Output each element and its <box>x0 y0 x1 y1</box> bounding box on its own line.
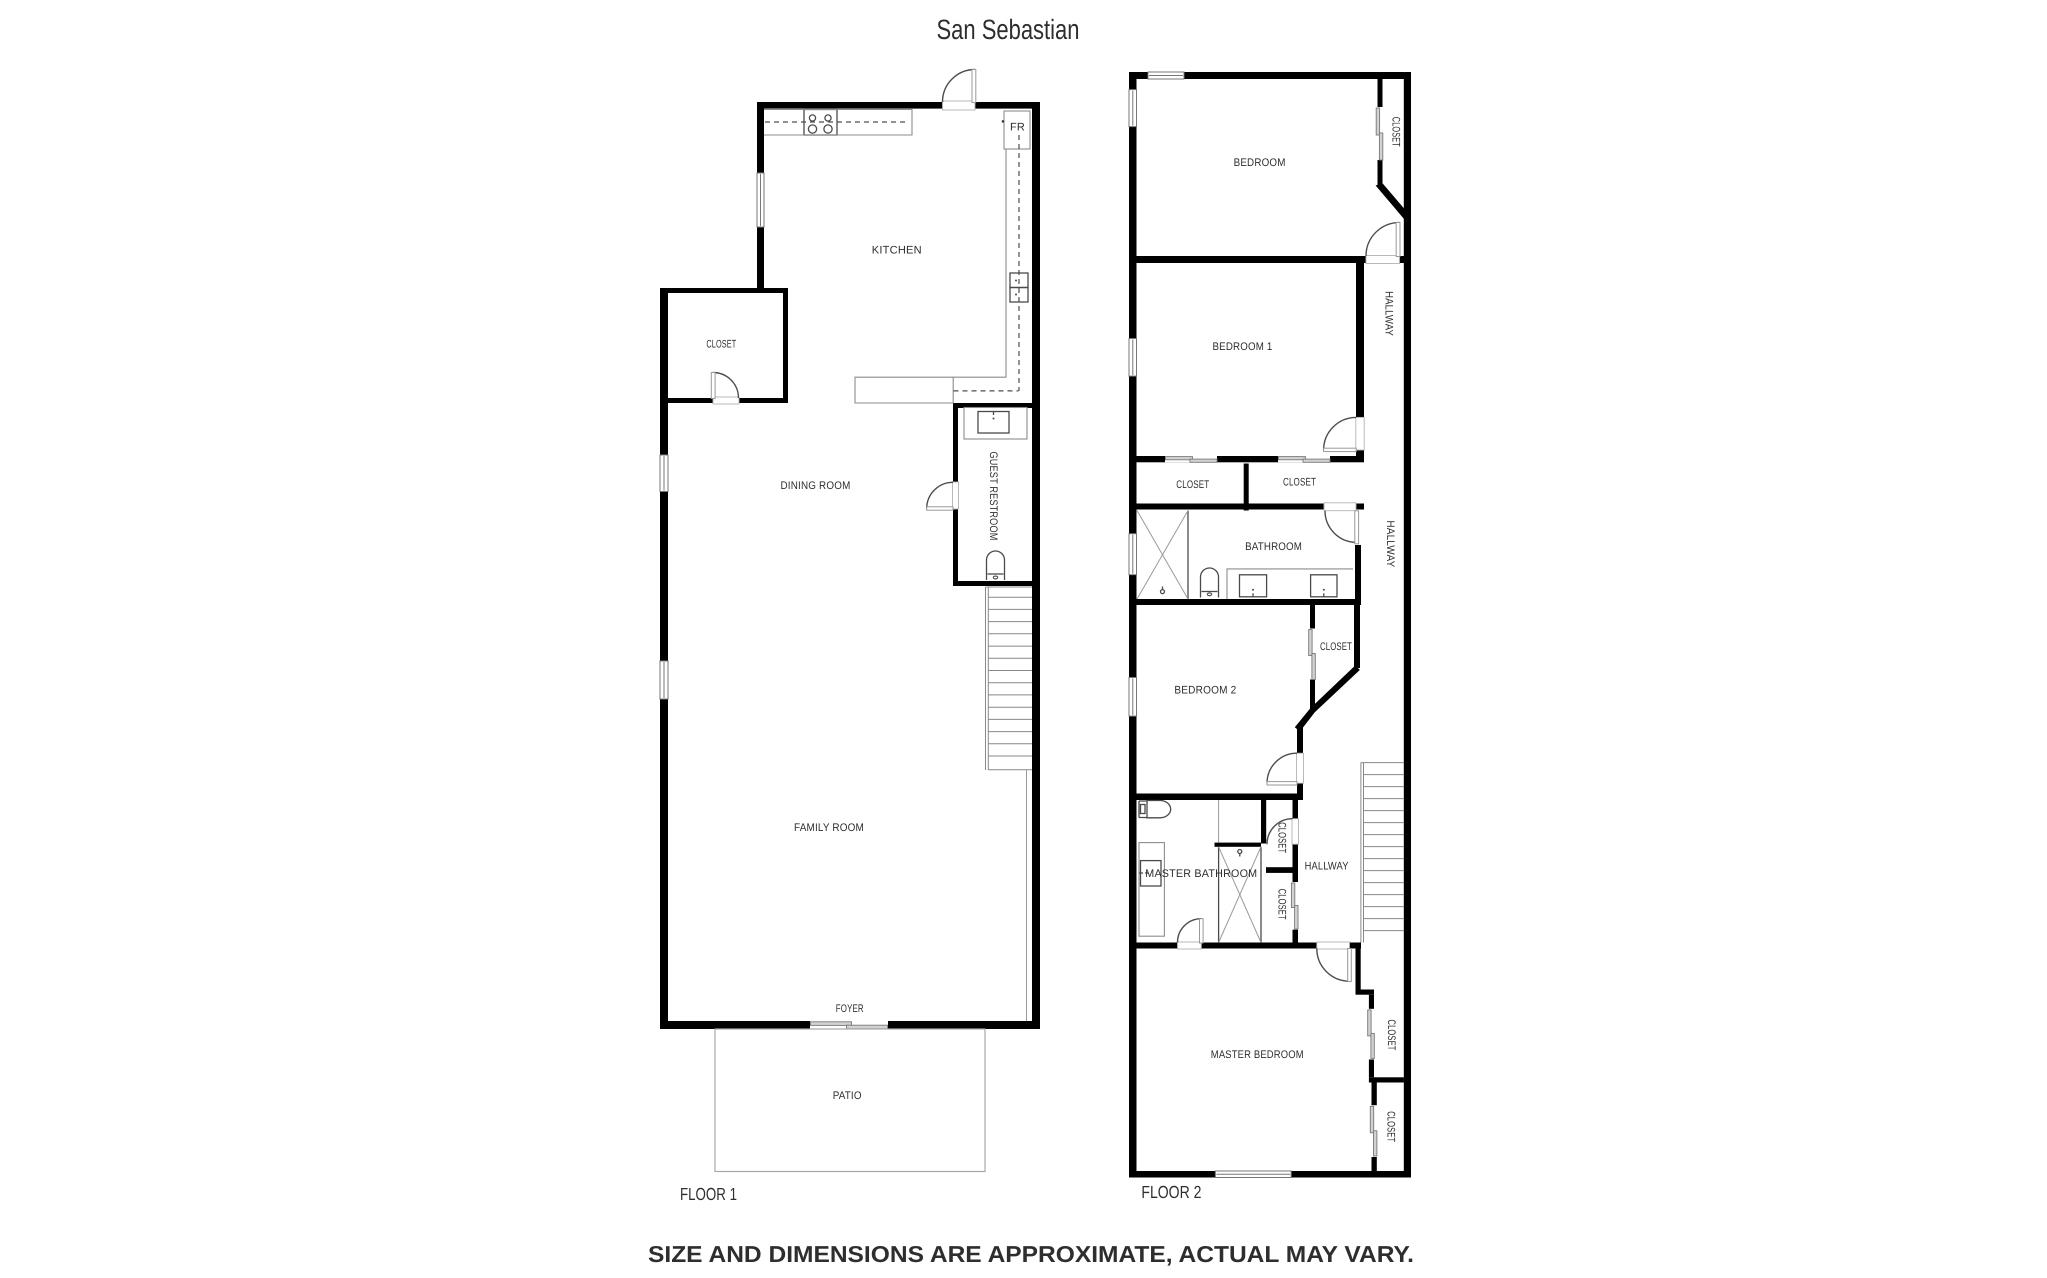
svg-text:CLOSET: CLOSET <box>1176 479 1209 491</box>
svg-text:DINING ROOM: DINING ROOM <box>781 480 851 492</box>
svg-text:PATIO: PATIO <box>833 1090 862 1102</box>
svg-text:FR: FR <box>1010 122 1025 134</box>
svg-text:San Sebastian: San Sebastian <box>937 14 1080 45</box>
svg-text:BEDROOM 2: BEDROOM 2 <box>1174 685 1236 697</box>
svg-text:GUEST RESTROOM: GUEST RESTROOM <box>987 452 999 541</box>
svg-text:FLOOR 2: FLOOR 2 <box>1141 1182 1201 1202</box>
svg-text:MASTER BATHROOM: MASTER BATHROOM <box>1145 868 1257 880</box>
svg-text:BEDROOM 1: BEDROOM 1 <box>1213 341 1273 353</box>
svg-text:MASTER BEDROOM: MASTER BEDROOM <box>1211 1049 1304 1061</box>
svg-text:HALLWAY: HALLWAY <box>1383 291 1395 336</box>
svg-text:CLOSET: CLOSET <box>1276 889 1288 920</box>
svg-text:CLOSET: CLOSET <box>1385 1020 1397 1051</box>
svg-text:HALLWAY: HALLWAY <box>1305 861 1349 873</box>
svg-text:HALLWAY: HALLWAY <box>1384 520 1396 567</box>
svg-text:CLOSET: CLOSET <box>1276 822 1288 853</box>
svg-text:CLOSET: CLOSET <box>706 339 736 351</box>
svg-text:CLOSET: CLOSET <box>1390 117 1402 147</box>
svg-text:BEDROOM: BEDROOM <box>1234 157 1286 169</box>
svg-text:BATHROOM: BATHROOM <box>1245 541 1302 553</box>
svg-text:FLOOR 1: FLOOR 1 <box>680 1184 737 1204</box>
svg-text:CLOSET: CLOSET <box>1320 641 1352 653</box>
svg-text:CLOSET: CLOSET <box>1385 1111 1397 1142</box>
svg-text:FOYER: FOYER <box>836 1003 864 1015</box>
svg-text:KITCHEN: KITCHEN <box>872 245 922 257</box>
svg-text:FAMILY ROOM: FAMILY ROOM <box>794 822 864 834</box>
svg-text:CLOSET: CLOSET <box>1283 477 1316 489</box>
svg-text:SIZE AND DIMENSIONS ARE APPROX: SIZE AND DIMENSIONS ARE APPROXIMATE, ACT… <box>648 1241 1414 1267</box>
